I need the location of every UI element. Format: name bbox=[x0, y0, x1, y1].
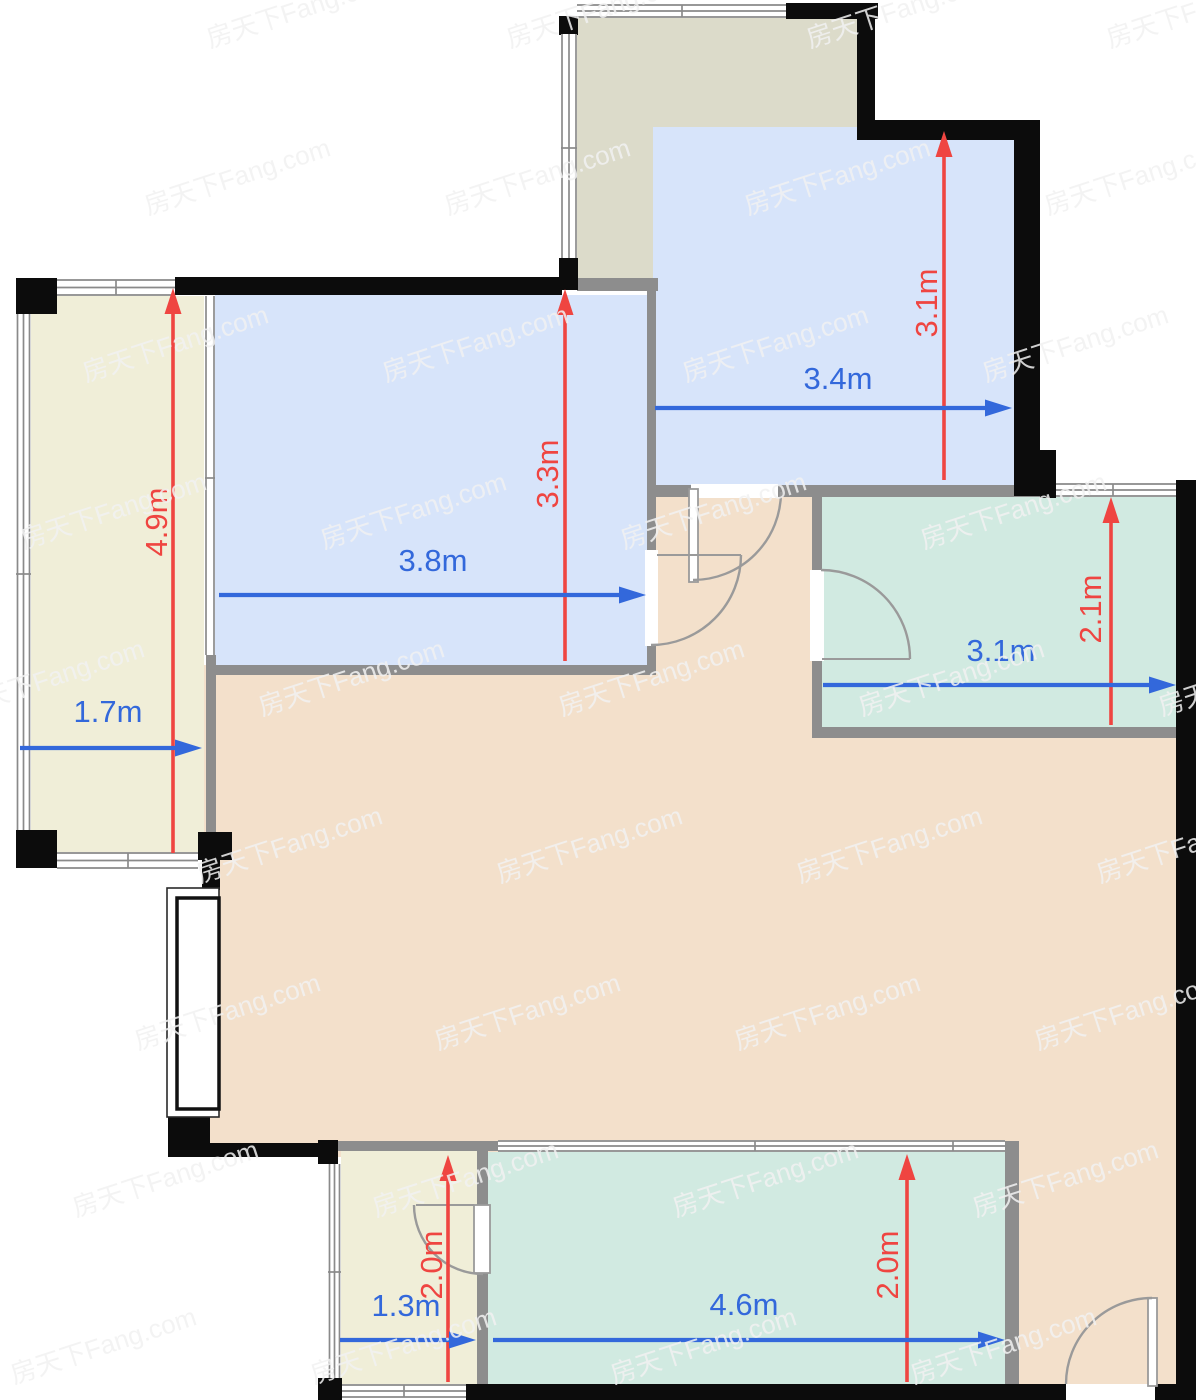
window-balcony-left-side bbox=[16, 314, 31, 830]
window-balcony-top-side bbox=[561, 34, 577, 258]
watermark-text: 房天下Fang.com bbox=[7, 1301, 200, 1389]
wall-segment bbox=[559, 258, 578, 290]
watermark-text: 房天下Fang.com bbox=[69, 1134, 262, 1222]
wall-segment bbox=[466, 1384, 1066, 1400]
dimension-label: 3.1m bbox=[909, 269, 944, 338]
floor-plan-svg: 4.9m 3.3m 3.1m 2.1m 2.0m 2.0m 1.7m 3.8m bbox=[0, 0, 1196, 1400]
dimension-label: 2.0m bbox=[870, 1231, 905, 1300]
floor-plan: 4.9m 3.3m 3.1m 2.1m 2.0m 2.0m 1.7m 3.8m bbox=[0, 0, 1196, 1400]
window-storage-side bbox=[328, 1164, 341, 1378]
wall-segment bbox=[336, 1141, 498, 1151]
door-leaf bbox=[474, 1205, 490, 1273]
wall-segment bbox=[1155, 1384, 1196, 1400]
wall-segment bbox=[577, 278, 658, 291]
wall-segment bbox=[206, 655, 216, 858]
room-balcony-left bbox=[31, 296, 204, 852]
door-leaf bbox=[1148, 1298, 1157, 1386]
wall-segment bbox=[812, 497, 822, 570]
dimension-label: 3.3m bbox=[530, 440, 565, 509]
watermark-text: 房天下Fang.com bbox=[203, 0, 396, 54]
wall-segment bbox=[213, 665, 656, 675]
dimension-label: 1.7m bbox=[74, 694, 143, 729]
watermark-text: 房天下Fang.com bbox=[1103, 0, 1196, 54]
wall-segment bbox=[1014, 120, 1040, 456]
wall-segment bbox=[647, 283, 656, 550]
wall-segment bbox=[812, 661, 822, 737]
window-balcony-left-bottom bbox=[57, 852, 198, 869]
watermark-text: 房天下Fang.com bbox=[141, 132, 334, 220]
window-balcony-bottom-top bbox=[498, 1140, 1005, 1152]
wall-segment bbox=[857, 120, 1040, 140]
dimension-label: 3.4m bbox=[804, 361, 873, 396]
window-bedroom-left-balcony bbox=[205, 296, 215, 655]
wall-segment bbox=[651, 485, 691, 497]
watermark-text: 房天下Fang.com bbox=[1041, 132, 1196, 220]
wall-segment bbox=[16, 278, 57, 314]
dimension-label: 3.8m bbox=[399, 543, 468, 578]
wall-segment bbox=[175, 277, 562, 295]
dimension-label: 2.1m bbox=[1073, 575, 1108, 644]
living-area-fill bbox=[204, 665, 813, 1157]
window-storage-bottom bbox=[342, 1384, 466, 1398]
dimension-label: 1.3m bbox=[372, 1288, 441, 1323]
wall-segment bbox=[1176, 480, 1196, 1400]
window-balcony-left-top bbox=[57, 279, 175, 296]
wall-segment bbox=[16, 830, 57, 868]
wall-segment bbox=[812, 727, 1178, 738]
wall-segment bbox=[778, 485, 1040, 497]
